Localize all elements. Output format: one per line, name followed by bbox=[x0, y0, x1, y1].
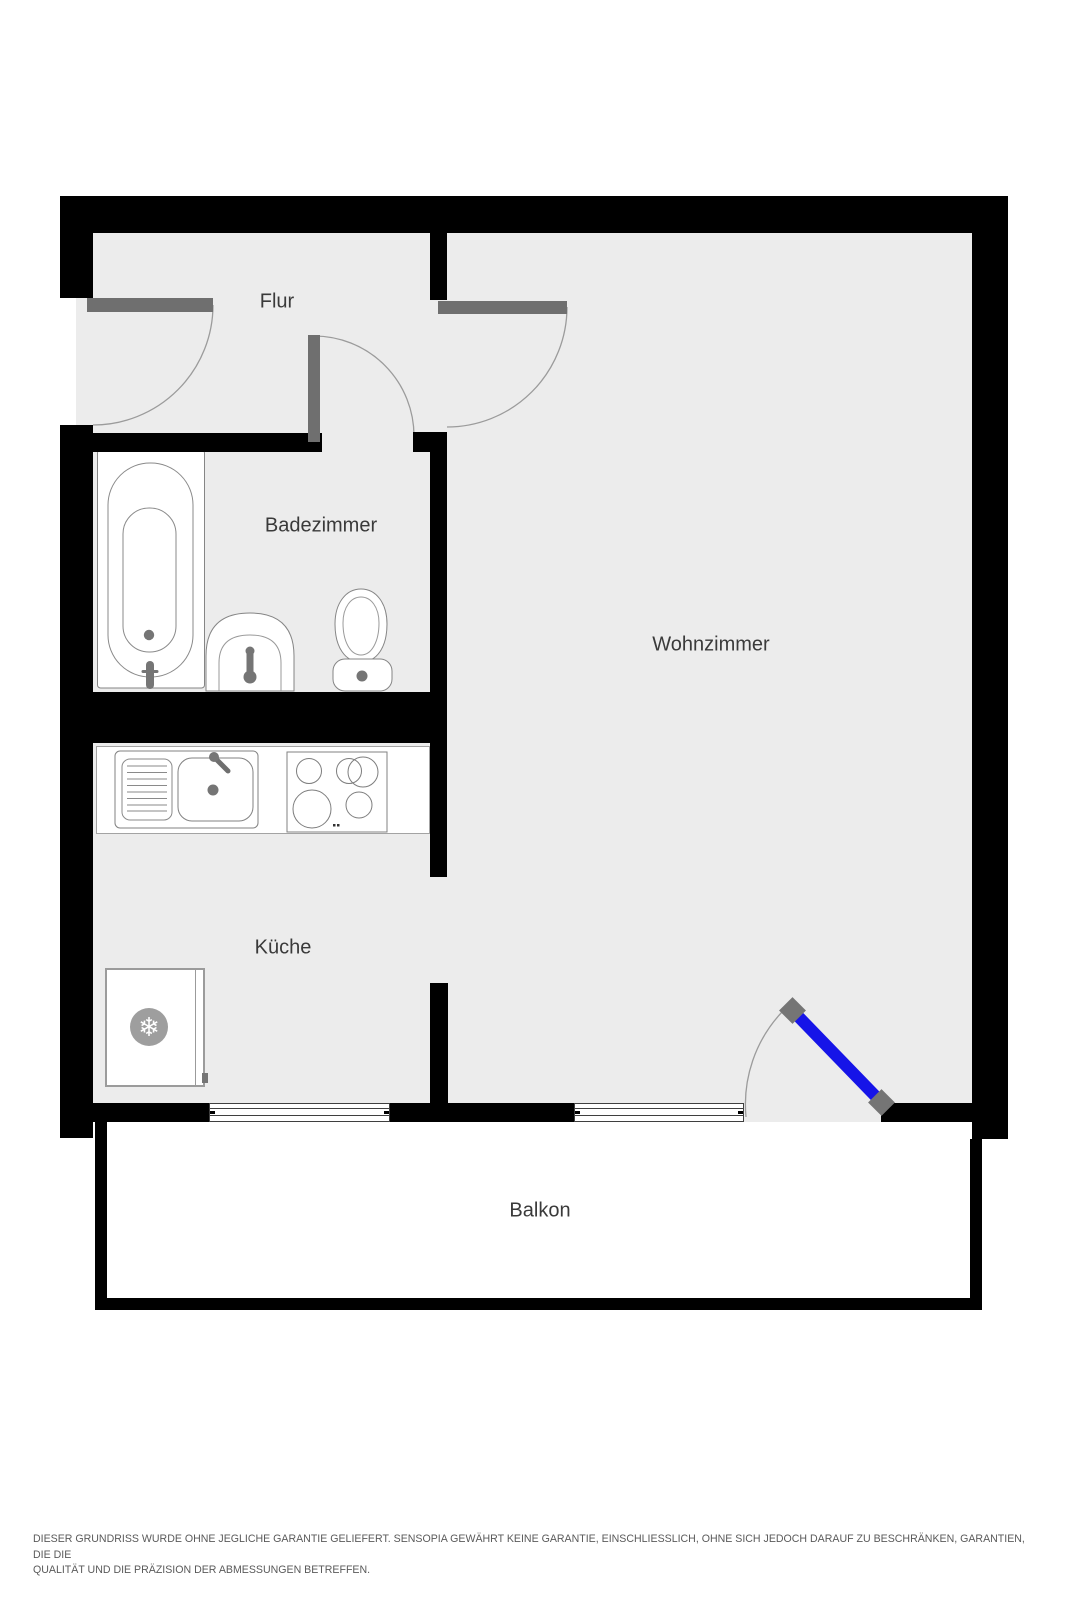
bottom-wall-middle bbox=[390, 1103, 574, 1122]
disclaimer-text: DIESER GRUNDRISS WURDE OHNE JEGLICHE GAR… bbox=[33, 1532, 1043, 1579]
outer-wall-left-upper bbox=[60, 233, 93, 298]
kitchen-counter bbox=[96, 746, 430, 834]
divider-wall-middle bbox=[430, 432, 447, 877]
divider-wall-bottom bbox=[430, 983, 448, 1122]
outer-wall-top bbox=[60, 196, 1008, 233]
apartment-floor bbox=[93, 233, 972, 1103]
bathroom-bottom-wall bbox=[93, 692, 430, 743]
room-label-balkon: Balkon bbox=[509, 1200, 570, 1223]
kitchen-window bbox=[209, 1103, 390, 1122]
entrance-door-leaf bbox=[87, 298, 213, 312]
livingroom-window bbox=[574, 1103, 744, 1122]
fridge-door-line bbox=[195, 969, 196, 1086]
room-label-wohnzimmer: Wohnzimmer bbox=[652, 634, 769, 657]
balcony-wall-left bbox=[95, 1122, 107, 1310]
hall-bottom-wall bbox=[93, 433, 322, 452]
outer-wall-right bbox=[972, 233, 1008, 1139]
room-label-kueche: Küche bbox=[255, 937, 312, 960]
fridge-handle bbox=[202, 1073, 208, 1083]
divider-wall-top bbox=[430, 233, 447, 300]
bottom-wall-left bbox=[60, 1103, 209, 1122]
room-label-badezimmer: Badezimmer bbox=[265, 515, 377, 538]
room-label-flur: Flur bbox=[260, 291, 294, 314]
entrance-threshold bbox=[76, 298, 93, 425]
disclaimer-line-1: DIESER GRUNDRISS WURDE OHNE JEGLICHE GAR… bbox=[33, 1532, 1043, 1563]
bathroom-door-leaf bbox=[308, 335, 320, 442]
outer-wall-left-lower bbox=[60, 425, 93, 1138]
disclaimer-line-2: QUALITÄT UND DIE PRÄZISION DER ABMESSUNG… bbox=[33, 1563, 1043, 1579]
bottom-wall-right bbox=[881, 1103, 1008, 1122]
balcony-wall-bottom bbox=[95, 1298, 982, 1310]
snowflake-icon: ❄ bbox=[130, 1008, 168, 1046]
floor-plan: ❄ Flur Badezimmer Wohnzimmer Küche Balko… bbox=[0, 0, 1067, 1600]
livingroom-door-leaf bbox=[438, 301, 567, 314]
balcony-wall-right bbox=[970, 1139, 982, 1310]
balcony-door-threshold bbox=[744, 1103, 881, 1122]
